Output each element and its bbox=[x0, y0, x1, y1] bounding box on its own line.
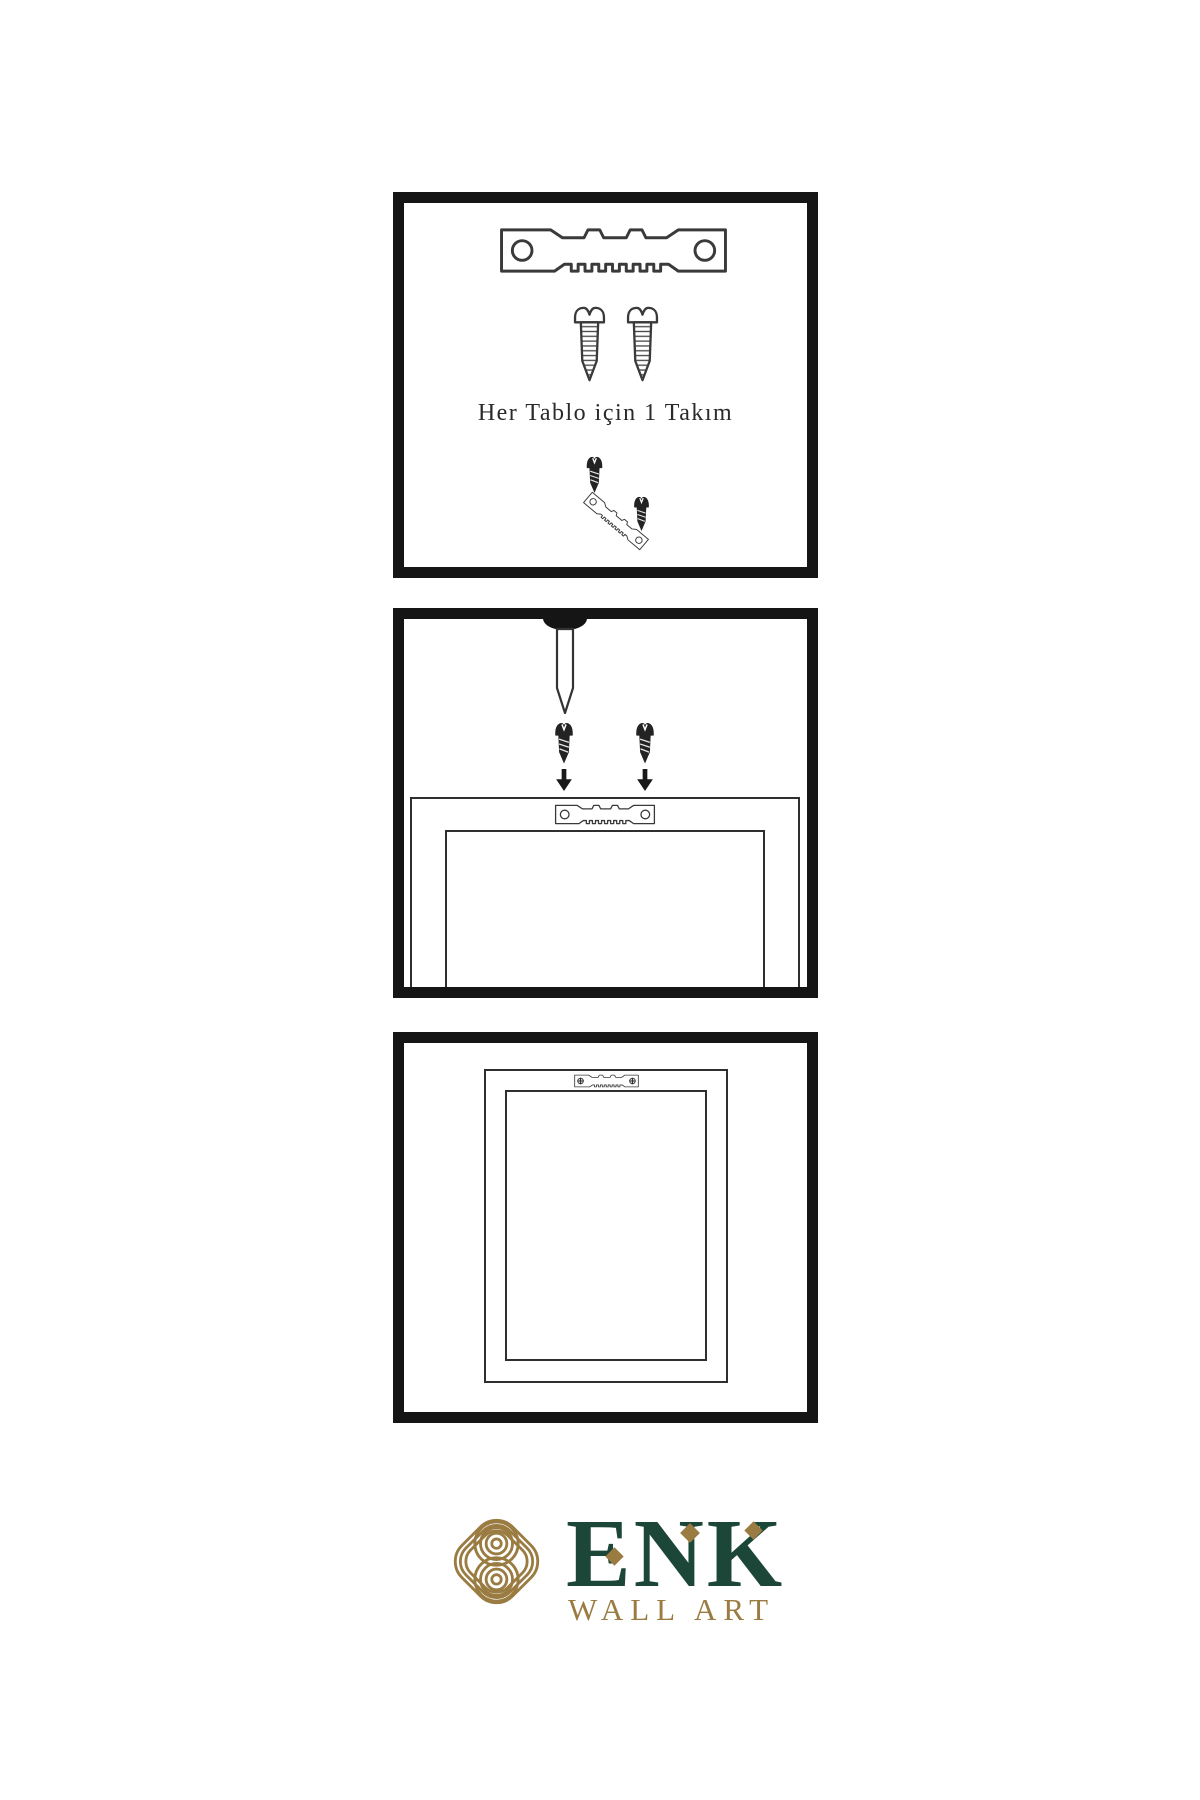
brand-lockup: ENK WALL ART bbox=[566, 1505, 826, 1635]
arrow-down-icon bbox=[636, 769, 654, 791]
nail-icon bbox=[542, 618, 588, 716]
arrow-down-icon bbox=[555, 769, 573, 791]
screw-icon bbox=[625, 305, 660, 384]
sawtooth-hanger-icon bbox=[553, 802, 657, 827]
enk-knot-logo-icon bbox=[440, 1498, 553, 1625]
instruction-sheet: Her Tablo için 1 Takım ENK WALL ART bbox=[0, 0, 1200, 1800]
sawtooth-hanger-icon bbox=[495, 223, 732, 278]
step2-attach-panel bbox=[393, 608, 818, 998]
dark-screw-icon bbox=[630, 722, 660, 766]
dark-screw-icon bbox=[549, 722, 579, 766]
dark-screw-icon bbox=[585, 456, 604, 495]
step1-kit-panel: Her Tablo için 1 Takım bbox=[393, 192, 818, 578]
brand-subtitle: WALL ART bbox=[568, 1592, 775, 1628]
kit-caption: Her Tablo için 1 Takım bbox=[404, 400, 807, 427]
step3-hang-panel bbox=[393, 1032, 818, 1423]
frame-inner-outline bbox=[445, 830, 765, 998]
brand-wordmark: ENK bbox=[566, 1505, 826, 1602]
frame-inner-outline bbox=[505, 1090, 707, 1361]
dark-screw-icon bbox=[632, 496, 651, 533]
screw-icon bbox=[572, 305, 607, 384]
mounted-hanger-icon bbox=[573, 1073, 640, 1089]
